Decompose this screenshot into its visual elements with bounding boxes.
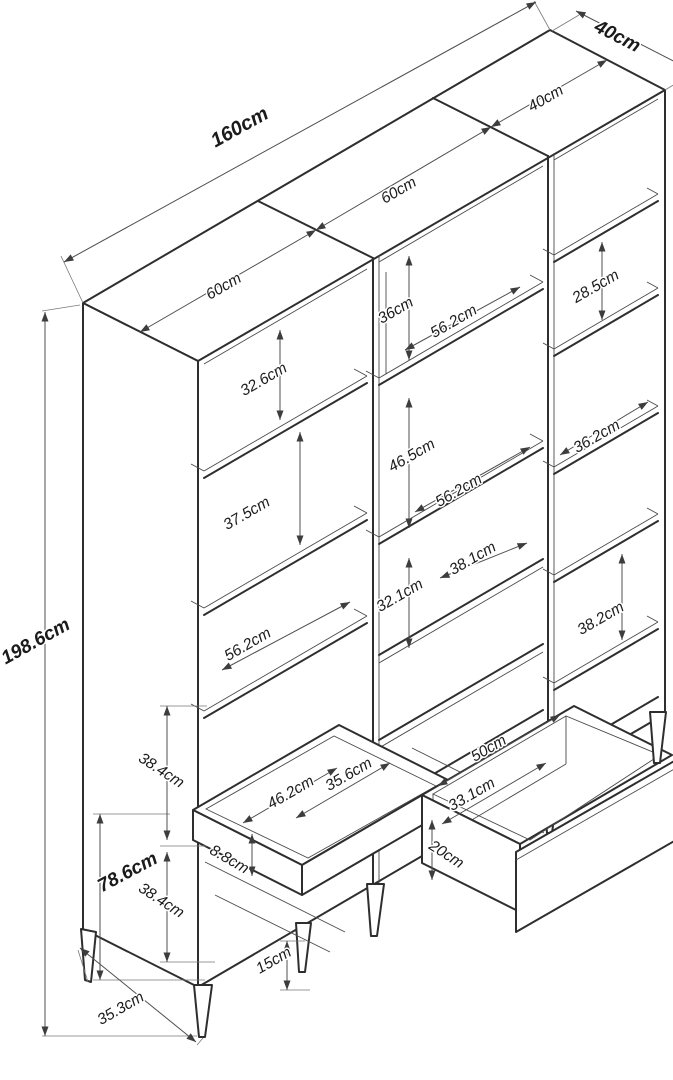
dim-label-56-2-lower: 56.2cm: [433, 471, 486, 511]
dim-label-36: 36cm: [375, 294, 416, 328]
dim-label-38-1: 38.1cm: [447, 539, 500, 579]
dim-label-36-2: 36.2cm: [571, 417, 624, 457]
dim-label-35-3: 35.3cm: [95, 989, 148, 1029]
dim-label-32-6: 32.6cm: [238, 360, 291, 400]
dim-label-37-5: 37.5cm: [221, 494, 274, 534]
dim-label-15: 15cm: [253, 944, 294, 978]
dimension-diagram-page: 160cm40cm60cm60cm40cm198.6cm32.6cm37.5cm…: [0, 0, 673, 1080]
pullout-drawer: [422, 706, 673, 932]
dim-label-160: 160cm: [207, 103, 272, 152]
dim-label-32-1: 32.1cm: [374, 576, 427, 616]
dim-label-28-5: 28.5cm: [569, 267, 622, 308]
dim-label-56-2-left: 56.2cm: [222, 625, 275, 665]
dim-label-38-2: 38.2cm: [575, 599, 628, 639]
furniture-dimension-diagram: 160cm40cm60cm60cm40cm198.6cm32.6cm37.5cm…: [0, 0, 673, 1080]
dim-label-46-5: 46.5cm: [386, 436, 439, 476]
dim-label-56-2-upper: 56.2cm: [428, 302, 481, 342]
dim-label-198-6: 198.6cm: [0, 614, 74, 669]
dim-label-40-depth: 40cm: [590, 16, 644, 57]
